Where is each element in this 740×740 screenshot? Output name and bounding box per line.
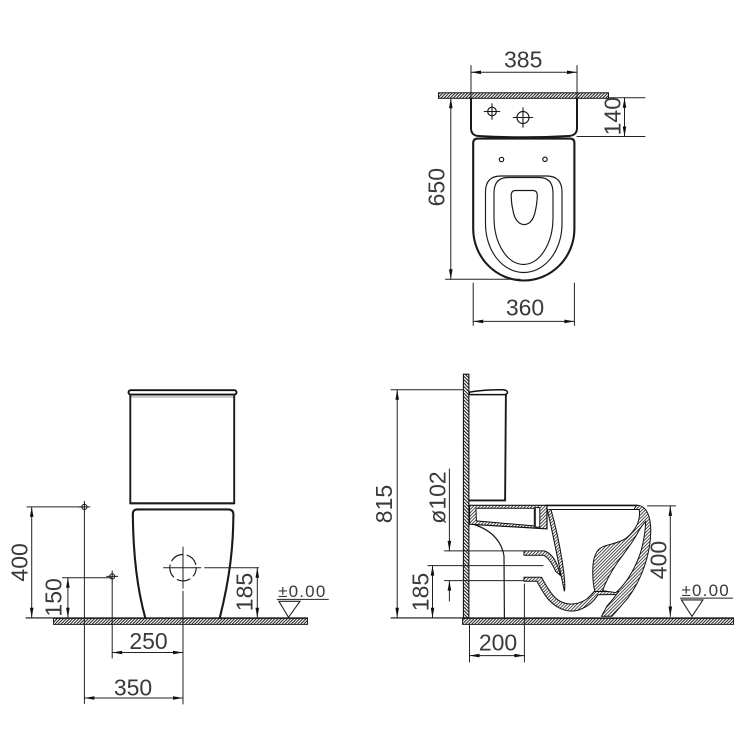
svg-text:350: 350 bbox=[114, 675, 152, 701]
svg-text:385: 385 bbox=[504, 46, 542, 72]
svg-text:815: 815 bbox=[371, 485, 397, 523]
svg-text:±0.00: ±0.00 bbox=[681, 581, 729, 600]
svg-text:400: 400 bbox=[6, 543, 32, 581]
svg-text:150: 150 bbox=[41, 578, 67, 616]
svg-text:±0.00: ±0.00 bbox=[278, 582, 326, 601]
svg-text:ø102: ø102 bbox=[424, 471, 450, 523]
svg-text:200: 200 bbox=[479, 630, 517, 656]
svg-text:185: 185 bbox=[231, 573, 257, 611]
svg-text:360: 360 bbox=[506, 295, 544, 321]
svg-text:400: 400 bbox=[645, 541, 671, 579]
svg-text:250: 250 bbox=[129, 628, 167, 654]
svg-text:650: 650 bbox=[424, 168, 450, 206]
svg-text:185: 185 bbox=[407, 573, 433, 611]
svg-text:140: 140 bbox=[599, 97, 625, 135]
